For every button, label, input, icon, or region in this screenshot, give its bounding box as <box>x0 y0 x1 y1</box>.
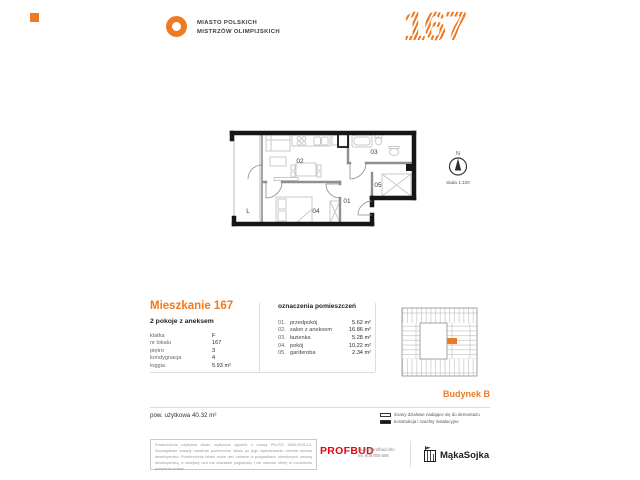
room-name: łazienka <box>290 335 352 341</box>
apartment-subtitle: 2 pokoje z aneksem <box>150 318 214 325</box>
developer-ring-logo-icon <box>166 16 187 37</box>
room-area: 10.22 m² <box>349 343 371 349</box>
detail-value: 5.93 m² <box>212 363 231 369</box>
highlighted-unit-marker <box>447 338 457 344</box>
room-name: przedpokój <box>290 320 352 326</box>
room-name: pokój <box>290 343 349 349</box>
room-number: 04. <box>278 343 290 349</box>
apartment-card-page: MIASTO POLSKICH MISTRZÓW OLIMPIJSKICH 16… <box>0 0 640 480</box>
room-label-01: 01 <box>343 198 351 205</box>
footer-divider <box>410 441 411 467</box>
detail-row-klatka: klatka F <box>150 332 250 340</box>
room-area: 16.86 m² <box>349 327 371 333</box>
room-label-03: 03 <box>370 149 378 156</box>
apartment-details-table: klatka F nr lokalu 167 piętro 3 kondygna… <box>150 332 250 370</box>
apartment-title: Mieszkanie 167 <box>150 300 233 312</box>
room-number: 03. <box>278 335 290 341</box>
developer-logo-text: MIASTO POLSKICH MISTRZÓW OLIMPIJSKICH <box>197 19 280 37</box>
legend-swatch-outline <box>380 413 391 417</box>
rooms-legend-heading: oznaczenia pomieszczeń <box>278 303 356 310</box>
room-label-05: 05 <box>374 182 382 189</box>
detail-value: 3 <box>212 348 215 354</box>
building-label: Budynek B <box>390 389 490 399</box>
legend-item-partition-walls: ściany działowe nadające się do demontaż… <box>380 411 480 418</box>
scale-label: skala 1:100 <box>446 180 470 185</box>
detail-value: F <box>212 333 215 339</box>
room-row-03: 03. łazienka 5.28 m² <box>278 334 371 342</box>
furniture-wardrobe <box>382 174 411 196</box>
usable-area-label: pow. użytkowa <box>150 412 192 419</box>
detail-row-loggia: loggia 5.93 m² <box>150 362 250 370</box>
column-divider-2 <box>375 303 376 372</box>
room-number: 02. <box>278 327 290 333</box>
room-label-04: 04 <box>312 208 320 215</box>
room-row-05: 05. garderoba 2.34 m² <box>278 349 371 357</box>
walls-legend: ściany działowe nadające się do demontaż… <box>380 411 480 425</box>
page-corner-mark <box>30 13 39 22</box>
detail-label: loggia <box>150 363 212 369</box>
legal-disclaimer-box: Powierzchnia użytkowa lokalu wyliczona z… <box>150 439 317 470</box>
building-site-plan <box>398 298 482 386</box>
detail-label: nr lokalu <box>150 340 212 346</box>
legend-label: konstrukcja i szachty instalacyjne <box>394 419 459 424</box>
usable-area-value: 40.32 m² <box>192 412 216 419</box>
compass-needle <box>455 159 461 171</box>
footer-top-rule <box>150 407 490 408</box>
detail-label: klatka <box>150 333 212 339</box>
room-area: 5.28 m² <box>352 335 371 341</box>
compass-icon: N skala 1:100 <box>441 147 477 191</box>
room-area: 2.34 m² <box>352 350 371 356</box>
detail-label: kondygnacja <box>150 355 212 361</box>
room-label-02: 02 <box>296 158 304 165</box>
room-label-loggia: L <box>246 208 250 215</box>
room-number: 01. <box>278 320 290 326</box>
door-swings <box>248 163 372 215</box>
room-row-01: 01. przedpokój 5.62 m² <box>278 319 371 327</box>
room-row-04: 04. pokój 10.22 m² <box>278 342 371 350</box>
room-name: salon z aneksem <box>290 327 349 333</box>
detail-row-pietro: piętro 3 <box>150 347 250 355</box>
legend-item-structure: konstrukcja i szachty instalacyjne <box>380 418 480 425</box>
furniture-kitchen <box>292 135 340 146</box>
columns-bottom-rule <box>150 372 375 373</box>
contact-phone: tel. 605 606 606 <box>358 453 395 459</box>
floor-plan-drawing: L 02 03 05 01 04 <box>226 121 418 239</box>
unit-number-stripe-overlay <box>403 6 483 47</box>
rooms-legend-table: 01. przedpokój 5.62 m² 02. salon z aneks… <box>278 319 371 357</box>
makasojka-logo-icon <box>423 446 437 463</box>
detail-value: 167 <box>212 340 221 346</box>
contact-info: biuro@profbud.info tel. 605 606 606 <box>358 447 395 460</box>
furniture-livingroom <box>266 135 321 181</box>
logo-line-1: MIASTO POLSKICH <box>197 19 280 28</box>
detail-row-kondygnacja: kondygnacja 4 <box>150 355 250 363</box>
detail-value: 4 <box>212 355 215 361</box>
furniture-bedroom <box>276 197 340 223</box>
room-number: 05. <box>278 350 290 356</box>
room-row-02: 02. salon z aneksem 16.86 m² <box>278 327 371 335</box>
building-ring <box>402 308 477 376</box>
installation-shaft-box <box>338 134 348 147</box>
legend-swatch-solid <box>380 420 391 424</box>
column-divider-1 <box>259 303 260 372</box>
outer-walls <box>232 133 414 224</box>
room-area: 5.62 m² <box>352 320 371 326</box>
legend-label: ściany działowe nadające się do demontaż… <box>394 412 480 417</box>
architect-name: MąkaSojka <box>440 450 489 461</box>
detail-row-nr-lokalu: nr lokalu 167 <box>150 340 250 348</box>
compass-north-label: N <box>456 151 460 157</box>
logo-line-2: MISTRZÓW OLIMPIJSKICH <box>197 28 280 37</box>
usable-area-line: pow. użytkowa 40.32 m² <box>150 412 216 419</box>
room-name: garderoba <box>290 350 352 356</box>
detail-label: piętro <box>150 348 212 354</box>
unit-number-display: 167 <box>403 6 483 47</box>
